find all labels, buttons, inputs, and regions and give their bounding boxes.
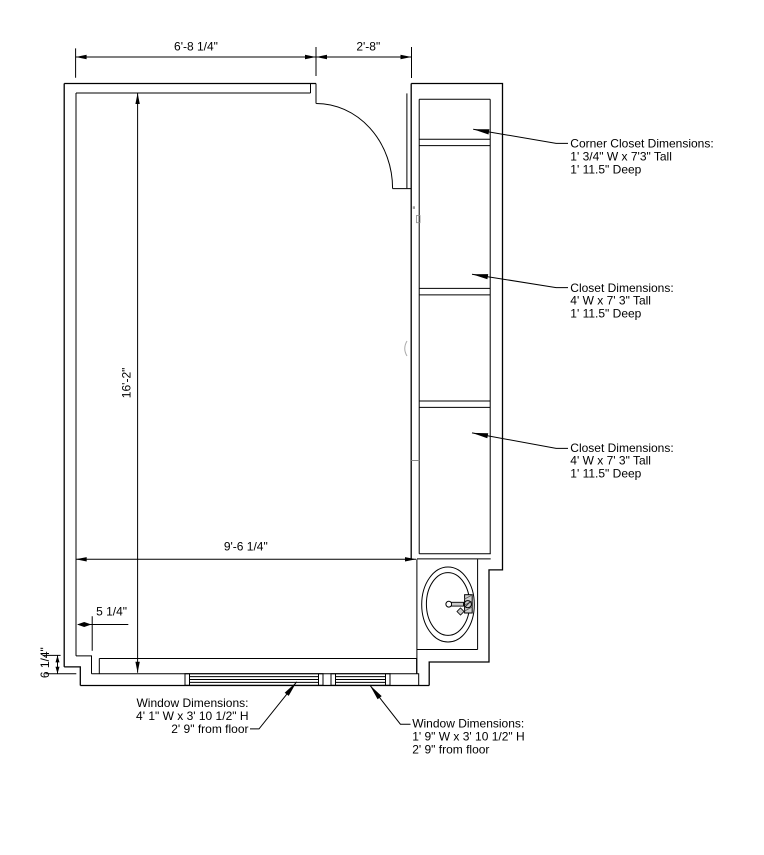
svg-text:4' 1" W x 3' 10 1/2" H: 4' 1" W x 3' 10 1/2" H xyxy=(136,709,248,723)
svg-text:2'-8": 2'-8" xyxy=(356,39,380,53)
svg-text:2' 9" from floor: 2' 9" from floor xyxy=(412,743,489,757)
svg-text:9'-6 1/4": 9'-6 1/4" xyxy=(224,540,268,554)
svg-text:Corner Closet Dimensions:: Corner Closet Dimensions: xyxy=(570,137,713,151)
svg-text:1' 11.5" Deep: 1' 11.5" Deep xyxy=(570,467,641,481)
svg-text:4' W x 7' 3" Tall: 4' W x 7' 3" Tall xyxy=(570,294,651,308)
svg-text:Window Dimensions:: Window Dimensions: xyxy=(136,696,248,710)
svg-text:6 1/4": 6 1/4" xyxy=(38,647,52,678)
svg-text:2' 9" from floor: 2' 9" from floor xyxy=(171,722,248,736)
svg-text:1' 3/4" W x 7'3" Tall: 1' 3/4" W x 7'3" Tall xyxy=(570,150,672,164)
svg-text:1' 11.5" Deep: 1' 11.5" Deep xyxy=(570,163,641,177)
svg-text:Closet Dimensions:: Closet Dimensions: xyxy=(570,281,673,295)
svg-text:16'-2": 16'-2" xyxy=(120,368,134,399)
svg-text:6'-8 1/4": 6'-8 1/4" xyxy=(174,39,218,53)
svg-text:1' 9" W x 3' 10 1/2" H: 1' 9" W x 3' 10 1/2" H xyxy=(412,730,524,744)
svg-text:5 1/4": 5 1/4" xyxy=(96,605,127,619)
svg-text:4' W x 7' 3" Tall: 4' W x 7' 3" Tall xyxy=(570,454,651,468)
svg-text:1' 11.5" Deep: 1' 11.5" Deep xyxy=(570,307,641,321)
svg-text:Window Dimensions:: Window Dimensions: xyxy=(412,717,524,731)
svg-text:Closet Dimensions:: Closet Dimensions: xyxy=(570,441,673,455)
